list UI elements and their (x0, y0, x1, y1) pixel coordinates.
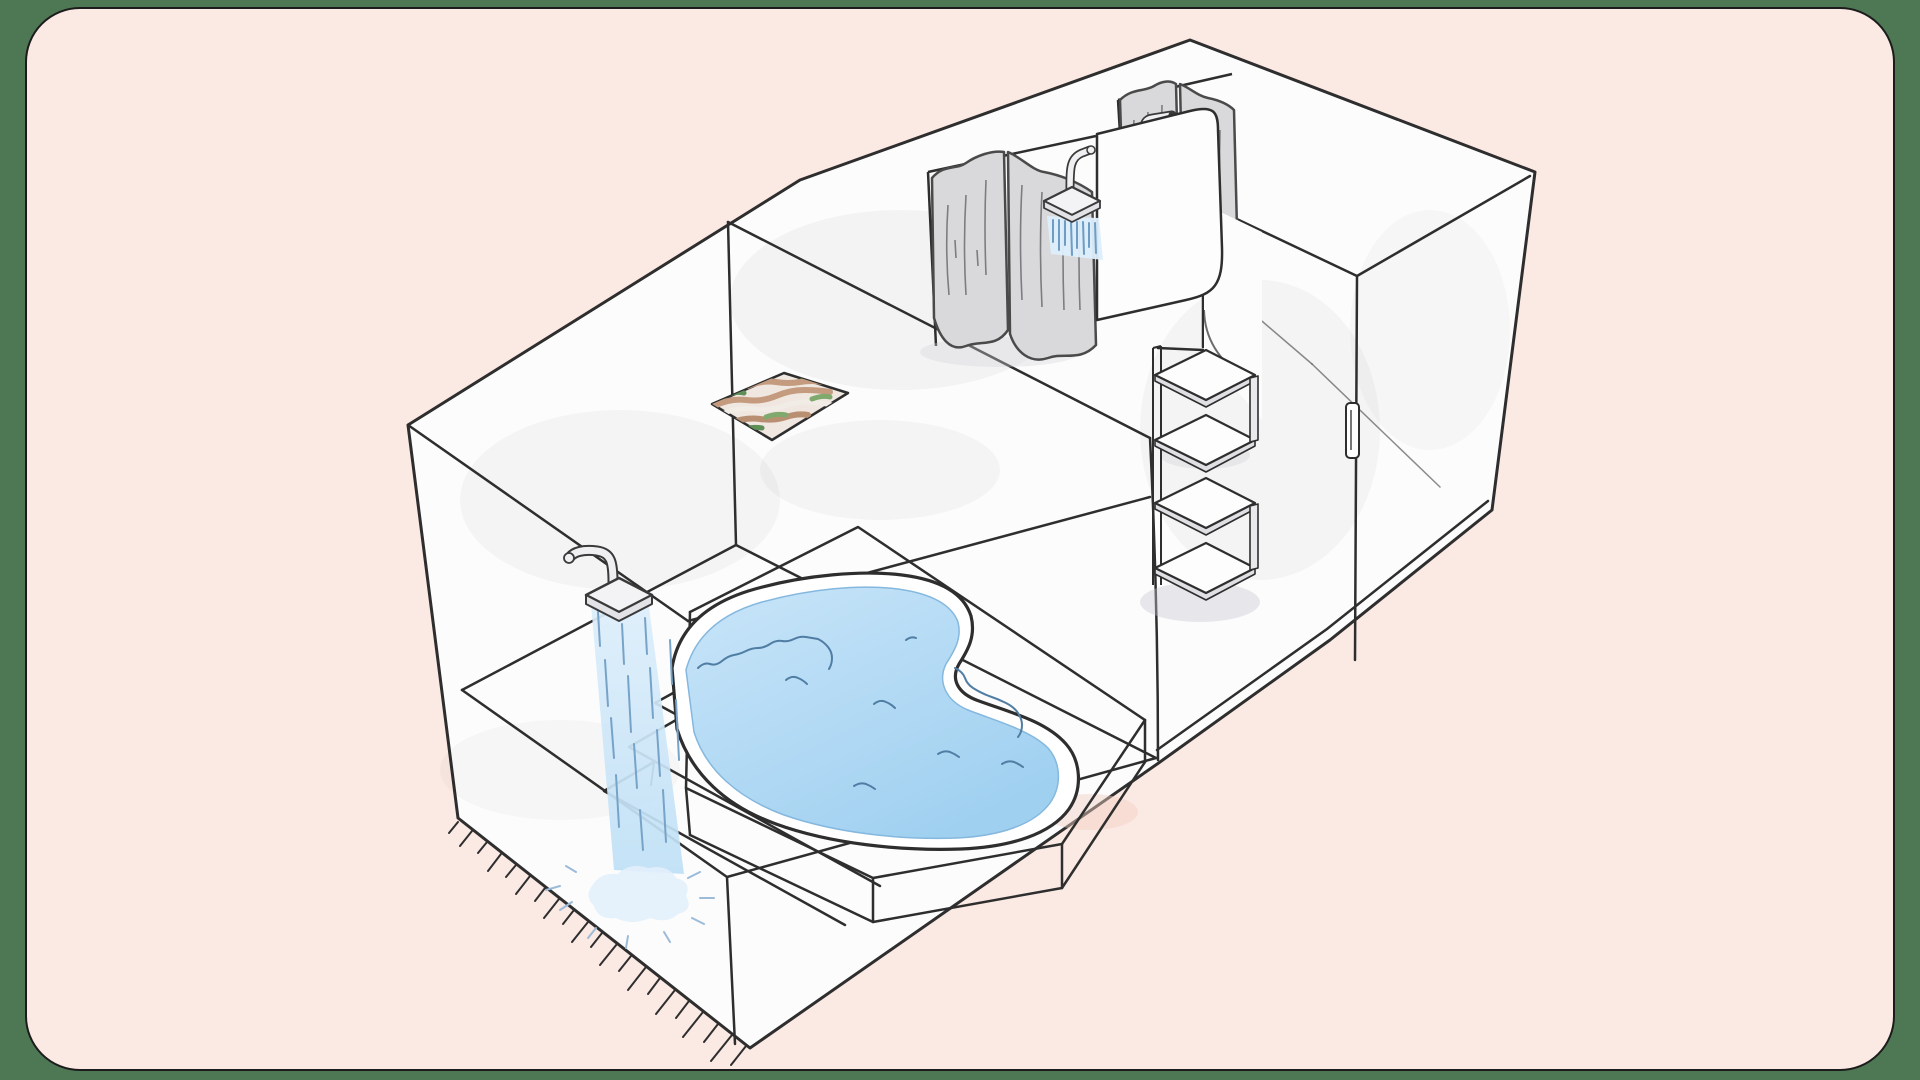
stall-partition-wall (1097, 109, 1222, 320)
curtain (932, 152, 1008, 348)
illustration-stage (0, 0, 1920, 1080)
shelf-side-board (1250, 376, 1258, 442)
door-handle (1346, 403, 1359, 458)
bathhouse-isometric-illustration (0, 0, 1920, 1080)
shelf-side-board (1250, 504, 1258, 570)
